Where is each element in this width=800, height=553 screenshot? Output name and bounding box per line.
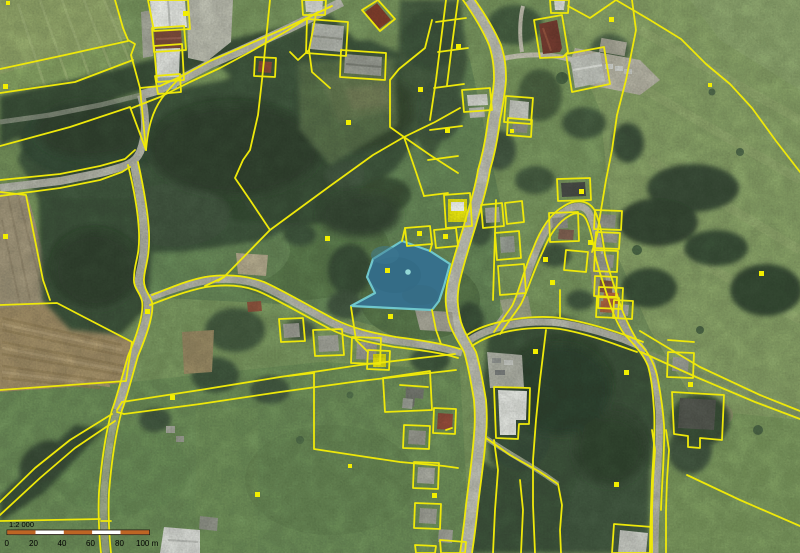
svg-text:20: 20	[29, 539, 38, 548]
svg-text:100 m: 100 m	[136, 539, 159, 548]
svg-text:80: 80	[115, 539, 124, 548]
svg-text:0: 0	[5, 539, 10, 548]
svg-text:40: 40	[58, 539, 67, 548]
svg-text:1:2 000: 1:2 000	[9, 520, 34, 529]
svg-text:60: 60	[86, 539, 95, 548]
